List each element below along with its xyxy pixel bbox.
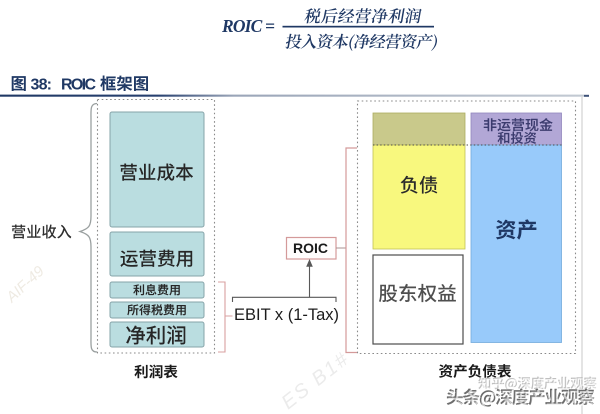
svg-text:ROIC: ROIC — [61, 77, 96, 94]
svg-text:38:: 38: — [31, 77, 53, 94]
svg-text:ROIC: ROIC — [293, 240, 328, 256]
svg-text:EBIT x (1-Tax): EBIT x (1-Tax) — [234, 306, 339, 324]
svg-text:ROIC =: ROIC = — [221, 16, 275, 36]
